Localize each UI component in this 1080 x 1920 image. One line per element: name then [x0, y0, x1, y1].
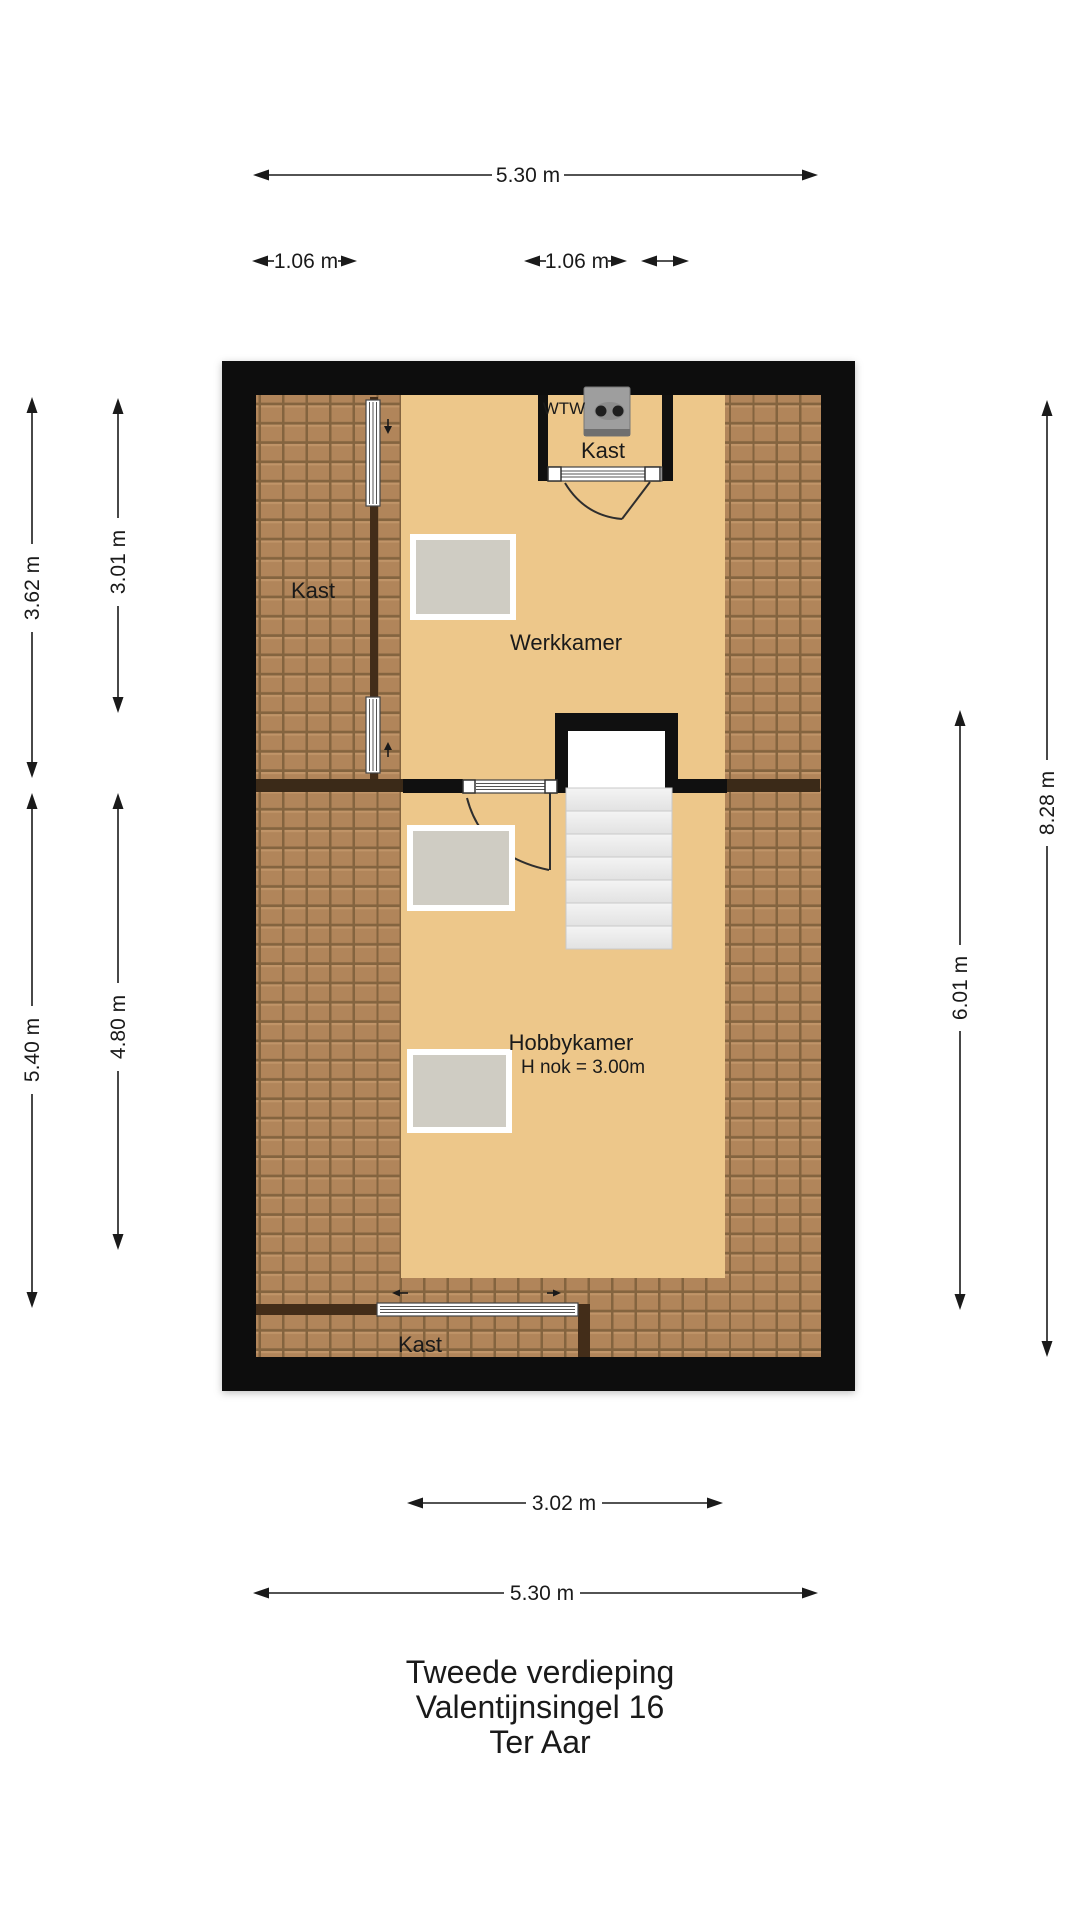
dim-right-inner: 6.01 m — [949, 710, 972, 1310]
label-hobby-height: H nok = 3.00m — [521, 1057, 645, 1078]
roof-slope-right — [725, 395, 821, 1357]
dim-top-right-closet: 1.06 m — [524, 250, 689, 273]
dim-top-left-closet: 1.06 m — [252, 250, 357, 273]
dim-small-span — [641, 256, 689, 267]
dim-left-outer-upper: 3.62 m — [21, 397, 44, 778]
dim-left-outer-upper-label: 3.62 m — [21, 556, 44, 620]
dim-bottom-total-label: 5.30 m — [510, 1582, 574, 1605]
dim-left-inner-upper: 3.01 m — [107, 398, 130, 713]
floorplan-canvas: Kast Werkkamer WTW Kast Hobbykamer H nok… — [0, 0, 1080, 1920]
dim-right-outer: 8.28 m — [1036, 400, 1059, 1357]
label-werkkamer: Werkkamer — [510, 630, 622, 655]
middle-wall-left — [403, 779, 463, 793]
staircase — [555, 713, 678, 949]
roof-slope-left — [256, 395, 401, 1357]
building — [222, 361, 855, 1391]
dim-left-inner-lower: 4.80 m — [107, 793, 130, 1250]
dim-bottom-inner: 3.02 m — [407, 1492, 723, 1515]
label-wtw: WTW — [543, 399, 585, 418]
stairwell-wall-right — [665, 713, 678, 793]
dim-left-inner-upper-label: 3.01 m — [107, 530, 130, 594]
dim-right-inner-label: 6.01 m — [949, 956, 972, 1020]
title-floor: Tweede verdieping — [406, 1654, 675, 1690]
dim-right-outer-label: 8.28 m — [1036, 771, 1059, 835]
dim-top-total-label: 5.30 m — [496, 164, 560, 187]
dim-bottom-inner-label: 3.02 m — [532, 1492, 596, 1515]
label-kast-left: Kast — [291, 578, 335, 603]
kast-bottom-wall — [256, 1304, 377, 1315]
stairwell-void — [568, 731, 665, 789]
middle-wall-band-right — [727, 779, 820, 792]
kast-top-wall-right — [662, 395, 673, 481]
dim-top-right-closet-label: 1.06 m — [545, 250, 609, 273]
roof-slope-bottom — [256, 1278, 821, 1357]
title-address: Valentijnsingel 16 — [416, 1689, 664, 1725]
desk-middle — [410, 828, 512, 908]
dim-left-outer-lower: 5.40 m — [21, 793, 44, 1308]
title-city: Ter Aar — [489, 1724, 591, 1760]
desk-werkkamer — [413, 537, 513, 617]
kast-bottom-endwall — [578, 1304, 590, 1357]
dim-top-total: 5.30 m — [253, 164, 818, 187]
stair-steps — [566, 788, 672, 949]
desk-hobbykamer — [410, 1052, 509, 1130]
dim-bottom-total: 5.30 m — [253, 1582, 818, 1605]
dim-top-left-closet-label: 1.06 m — [274, 250, 338, 273]
label-kast-top: Kast — [581, 438, 625, 463]
dim-left-inner-lower-label: 4.80 m — [107, 995, 130, 1059]
middle-wall-right — [678, 779, 727, 793]
floorplan-page: Kast Werkkamer WTW Kast Hobbykamer H nok… — [0, 0, 1080, 1920]
dim-left-outer-lower-label: 5.40 m — [21, 1018, 44, 1082]
plan-title: Tweede verdieping Valentijnsingel 16 Ter… — [406, 1654, 675, 1760]
wtw-unit — [584, 387, 630, 436]
stairwell-wall-top — [555, 713, 678, 731]
label-hobbykamer: Hobbykamer — [509, 1030, 634, 1055]
middle-wall-band-left — [256, 779, 403, 792]
label-kast-bottom: Kast — [398, 1332, 442, 1357]
